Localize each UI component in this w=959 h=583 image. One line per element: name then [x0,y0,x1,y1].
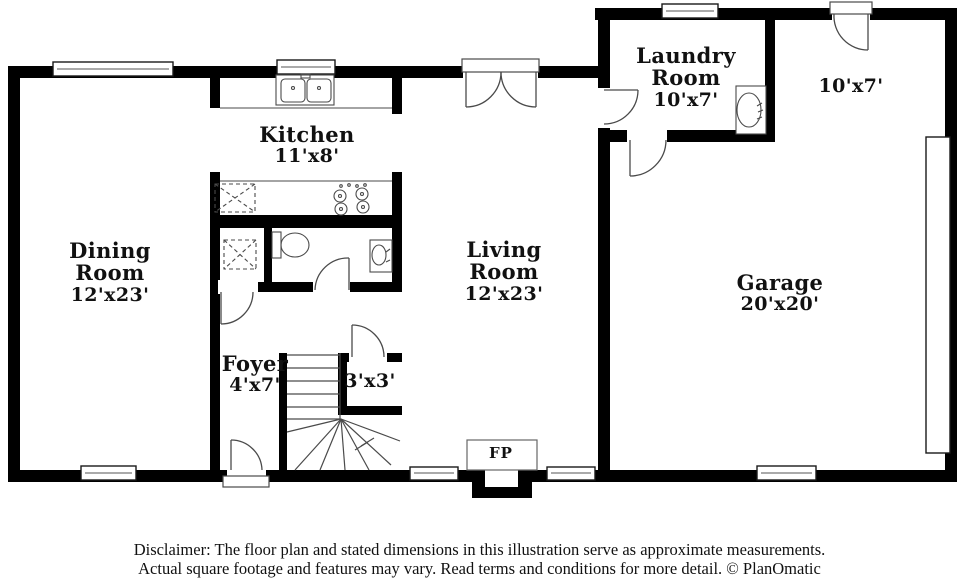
room-label-dining: Dining Room 12'x23' [55,240,165,305]
room-name: Kitchen [247,124,367,146]
room-label-kitchen: Kitchen 11'x8' [247,124,367,166]
room-name: Foyer [200,353,310,375]
kitchen-sink [276,74,334,105]
room-name: Laundry Room [631,45,741,90]
foyer-door [221,292,253,324]
room-name: Dining Room [55,240,165,285]
room-dims: 3'x3' [330,371,410,391]
laundry-garage-door [630,140,666,176]
front-door-threshold [223,476,269,487]
room-dims: 12'x23' [55,285,165,305]
opening-laundry-entry [596,88,612,128]
opening-closet-door [349,351,387,364]
hall-closet [224,240,256,269]
fireplace-abbr: FP [489,444,513,462]
disclaimer-line-2: Actual square footage and features may v… [0,560,959,579]
wall-kitchen-bottom [210,215,402,228]
room-dims: 10'x7' [801,76,901,96]
opening-laundry-garage [627,128,667,144]
bathroom-sink [370,240,392,272]
room-dims: 4'x7' [200,375,310,395]
room-dims: 20'x20' [725,294,835,314]
wall-kitchen-right-upper [392,66,402,114]
bonus-door-sill [830,2,872,14]
wall-kitchen-right-lower [392,172,402,292]
disclaimer: Disclaimer: The floor plan and stated di… [0,541,959,579]
garage-door [926,137,950,453]
bathroom-fixtures [224,232,392,272]
wall-bath-divider [264,228,272,288]
wall-closet-bottom [338,406,402,415]
room-dims: 11'x8' [247,146,367,166]
room-dims: 10'x7' [631,90,741,110]
floor-plan: Dining Room 12'x23' Kitchen 11'x8' Livin… [0,0,959,583]
fireplace-label: FP [483,446,519,462]
room-dims: 12'x23' [449,284,559,304]
dishwasher [215,184,255,212]
stove [334,184,369,215]
room-label-garage: Garage 20'x20' [725,272,835,314]
room-label-living: Living Room 12'x23' [449,239,559,304]
opening-dining-kitchen [208,108,222,172]
room-label-laundry: Laundry Room 10'x7' [631,45,741,110]
room-label-closet: 3'x3' [330,371,410,391]
room-label-foyer: Foyer 4'x7' [200,353,310,395]
wall-living-garage-divider [598,8,610,482]
opening-foyer-door [218,280,258,294]
room-name: Garage [725,272,835,294]
wall-left [8,66,20,482]
disclaimer-line-1: Disclaimer: The floor plan and stated di… [0,541,959,560]
wall-top-right [595,8,957,20]
french-door-sill [462,59,539,72]
room-label-bonus: 10'x7' [801,76,901,96]
toilet [272,232,309,258]
front-door [231,440,262,470]
fireplace-notch [485,470,518,487]
opening-bath-door [313,280,350,294]
stair-direction-mark [355,438,374,450]
garage-door-panel [926,137,950,453]
room-name: Living Room [449,239,559,284]
